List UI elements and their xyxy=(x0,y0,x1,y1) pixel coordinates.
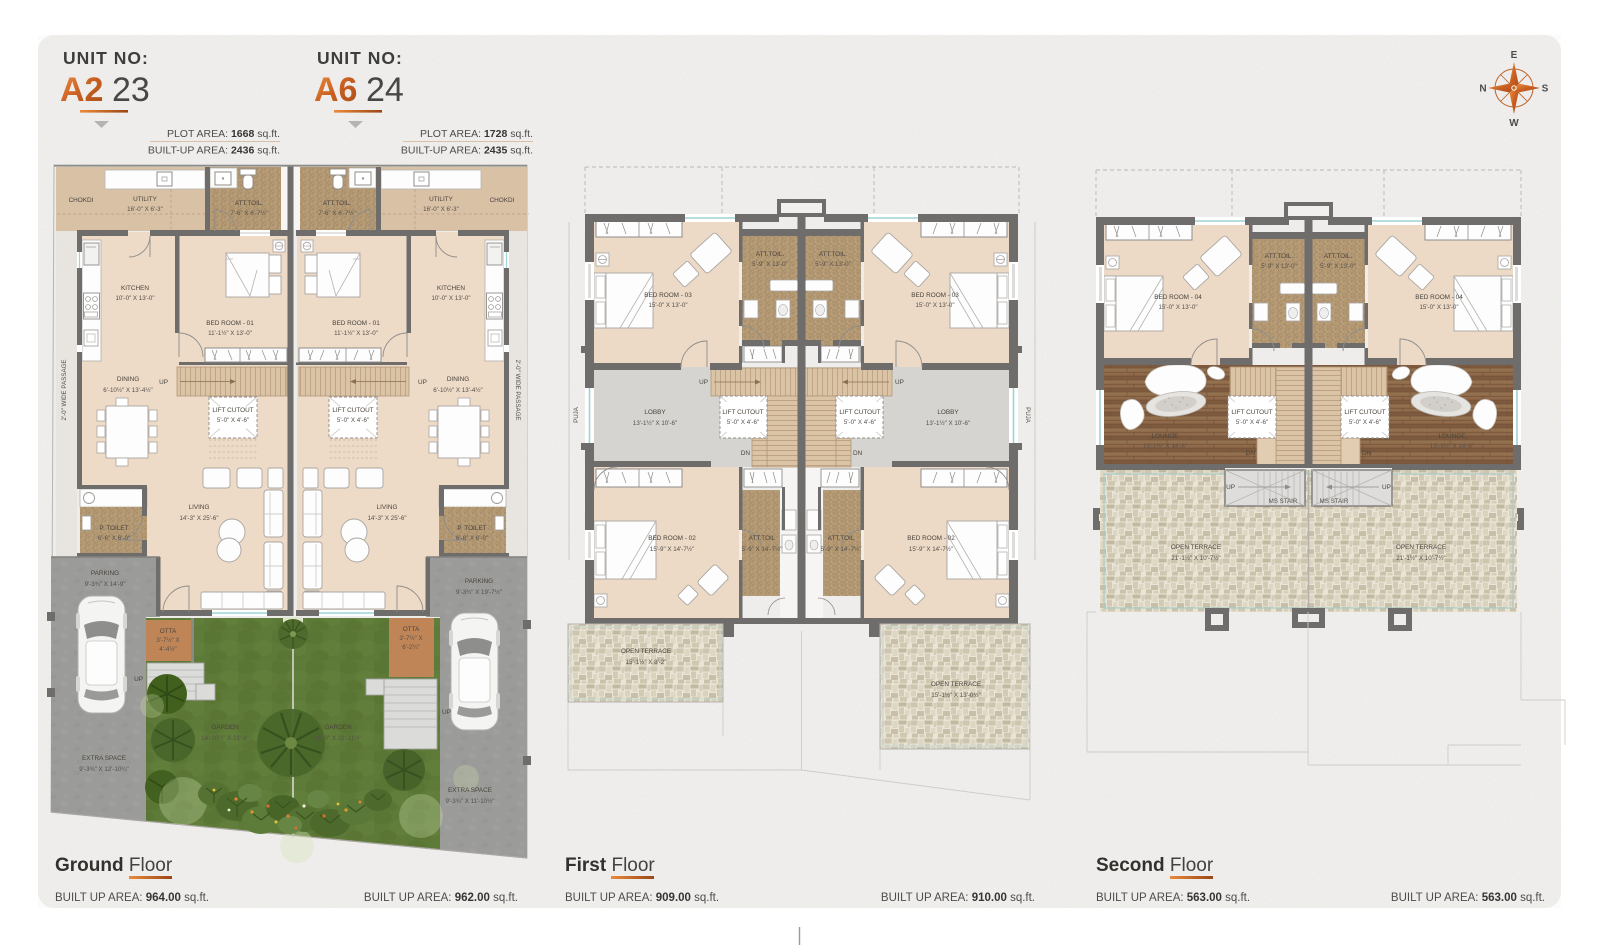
svg-text:2'-0" WIDE PASSAGE: 2'-0" WIDE PASSAGE xyxy=(61,359,68,420)
svg-text:4'-4½": 4'-4½" xyxy=(159,646,176,653)
svg-text:10'-0" X 13'-0": 10'-0" X 13'-0" xyxy=(431,295,470,302)
svg-text:A6: A6 xyxy=(314,71,357,109)
svg-text:LIFT CUTOUT: LIFT CUTOUT xyxy=(1344,409,1385,416)
svg-text:Ground Floor: Ground Floor xyxy=(55,855,173,876)
svg-text:16'-0" X 6'-3": 16'-0" X 6'-3" xyxy=(127,206,163,213)
svg-text:P. TOILET: P. TOILET xyxy=(457,525,486,532)
svg-text:DN: DN xyxy=(853,450,863,457)
svg-text:UNIT NO:: UNIT NO: xyxy=(317,48,403,68)
svg-text:EXTRA SPACE: EXTRA SPACE xyxy=(82,755,126,762)
svg-text:UP: UP xyxy=(442,709,451,716)
svg-text:GARDEN: GARDEN xyxy=(211,724,239,731)
svg-text:7'-6" X 6'-7½": 7'-6" X 6'-7½" xyxy=(318,210,355,217)
svg-text:7'-6" X 6'-7½": 7'-6" X 6'-7½" xyxy=(230,210,267,217)
svg-text:9'-3¾" X 12'-10¼": 9'-3¾" X 12'-10¼" xyxy=(79,766,128,773)
svg-text:13'-1½" X 10'-6": 13'-1½" X 10'-6" xyxy=(926,420,970,427)
svg-text:5'-9" X 13'-0": 5'-9" X 13'-0" xyxy=(1320,263,1356,270)
svg-text:OPEN TERRACE: OPEN TERRACE xyxy=(1171,544,1221,551)
svg-text:13'-1½" X 14'-6": 13'-1½" X 14'-6" xyxy=(1143,443,1187,450)
svg-text:ATT.TOIL.: ATT.TOIL. xyxy=(756,251,785,258)
svg-text:5'-0" X 4'-6": 5'-0" X 4'-6" xyxy=(1236,419,1268,426)
svg-text:10'-0" X 13'-0": 10'-0" X 13'-0" xyxy=(115,295,154,302)
svg-text:3'-7½" X: 3'-7½" X xyxy=(399,635,422,642)
svg-text:BED ROOM - 01: BED ROOM - 01 xyxy=(206,320,254,327)
svg-text:5'-9" X 13'-0": 5'-9" X 13'-0" xyxy=(815,261,851,268)
svg-text:BUILT UP AREA: 910.00 sq.ft.: BUILT UP AREA: 910.00 sq.ft. xyxy=(881,892,1035,904)
svg-text:15'-1½" X 8'-2": 15'-1½" X 8'-2" xyxy=(626,659,667,666)
svg-text:23: 23 xyxy=(112,71,150,109)
svg-text:LIFT CUTOUT: LIFT CUTOUT xyxy=(1231,409,1272,416)
svg-text:15'-9" X 14'-7½": 15'-9" X 14'-7½" xyxy=(909,546,953,553)
svg-text:EXTRA SPACE: EXTRA SPACE xyxy=(448,787,492,794)
svg-text:13'-1½" X 10'-6": 13'-1½" X 10'-6" xyxy=(633,420,677,427)
svg-text:DN: DN xyxy=(741,450,751,457)
svg-text:S: S xyxy=(1542,84,1549,95)
svg-text:ATT.TOIL: ATT.TOIL xyxy=(828,535,855,542)
svg-text:LIVING: LIVING xyxy=(377,504,398,511)
svg-text:LIFT CUTOUT: LIFT CUTOUT xyxy=(332,407,373,414)
svg-text:14'-3" X 25'-6": 14'-3" X 25'-6" xyxy=(179,515,218,522)
svg-text:11'-1½" X 13'-0": 11'-1½" X 13'-0" xyxy=(334,330,378,337)
svg-text:OPEN TERRACE: OPEN TERRACE xyxy=(1396,544,1446,551)
svg-text:OTTA: OTTA xyxy=(403,626,420,633)
svg-text:9'-3¾" X 14'-9": 9'-3¾" X 14'-9" xyxy=(85,581,126,588)
svg-text:5'-0" X 4'-6": 5'-0" X 4'-6" xyxy=(1349,419,1381,426)
svg-text:LIFT CUTOUT: LIFT CUTOUT xyxy=(839,409,880,416)
svg-text:PLOT AREA: 1728 sq.ft.: PLOT AREA: 1728 sq.ft. xyxy=(420,128,533,140)
svg-text:5'-9" X 13'-0": 5'-9" X 13'-0" xyxy=(1261,263,1297,270)
svg-text:LIVING: LIVING xyxy=(189,504,210,511)
svg-text:BED ROOM - 03: BED ROOM - 03 xyxy=(911,292,959,299)
svg-text:KITCHEN: KITCHEN xyxy=(437,285,465,292)
svg-text:LOBBY: LOBBY xyxy=(937,409,959,416)
svg-text:BED ROOM - 02: BED ROOM - 02 xyxy=(907,535,955,542)
svg-text:UP: UP xyxy=(134,676,143,683)
svg-text:LIFT CUTOUT: LIFT CUTOUT xyxy=(212,407,253,414)
svg-text:UTILITY: UTILITY xyxy=(429,196,454,203)
svg-text:LOUNGE: LOUNGE xyxy=(1152,433,1179,440)
svg-text:UP: UP xyxy=(1382,484,1391,491)
svg-text:BUILT UP AREA: 964.00 sq.ft.: BUILT UP AREA: 964.00 sq.ft. xyxy=(55,892,209,904)
svg-text:3'-7½" X: 3'-7½" X xyxy=(156,637,179,644)
svg-text:UP: UP xyxy=(1226,484,1235,491)
svg-text:LOBBY: LOBBY xyxy=(644,409,666,416)
svg-text:PARKING: PARKING xyxy=(91,570,119,577)
svg-text:DINING: DINING xyxy=(117,376,139,383)
svg-text:16'-0" X 6'-3": 16'-0" X 6'-3" xyxy=(423,206,459,213)
svg-text:E: E xyxy=(1511,50,1518,61)
svg-text:14'-3" X 25'-6": 14'-3" X 25'-6" xyxy=(367,515,406,522)
svg-text:21'-1½" X 10'-7½": 21'-1½" X 10'-7½" xyxy=(1171,555,1220,562)
svg-text:UP: UP xyxy=(159,379,168,386)
svg-text:CHOKDI: CHOKDI xyxy=(69,197,94,204)
svg-text:ATT.TOIL.: ATT.TOIL. xyxy=(819,251,848,258)
svg-text:5'-0" X 4'-6": 5'-0" X 4'-6" xyxy=(217,417,249,424)
svg-text:5'-9" X 13'-0": 5'-9" X 13'-0" xyxy=(752,261,788,268)
svg-text:ATT.TOIL.: ATT.TOIL. xyxy=(323,200,352,207)
svg-text:24: 24 xyxy=(366,71,404,109)
svg-text:21'-1½" X 10'-7½": 21'-1½" X 10'-7½" xyxy=(1396,555,1445,562)
svg-text:BUILT UP AREA: 563.00 sq.ft.: BUILT UP AREA: 563.00 sq.ft. xyxy=(1391,892,1545,904)
svg-text:UP: UP xyxy=(895,379,904,386)
svg-text:BUILT-UP AREA: 2436 sq.ft.: BUILT-UP AREA: 2436 sq.ft. xyxy=(148,145,280,157)
svg-text:First Floor: First Floor xyxy=(565,855,655,876)
svg-text:GARDEN: GARDEN xyxy=(324,724,352,731)
svg-text:CHOKDI: CHOKDI xyxy=(490,197,515,204)
svg-text:MS STAIR: MS STAIR xyxy=(1269,498,1298,505)
svg-text:MS STAIR: MS STAIR xyxy=(1320,498,1349,505)
svg-text:6'-6" X 6'-0": 6'-6" X 6'-0" xyxy=(456,535,488,542)
svg-text:ATT.TOIL.: ATT.TOIL. xyxy=(1324,253,1353,260)
svg-text:5'-9" X 14'-7½": 5'-9" X 14'-7½" xyxy=(742,546,783,553)
svg-text:5'-0" X 4'-6": 5'-0" X 4'-6" xyxy=(844,419,876,426)
svg-text:ATT.TOIL: ATT.TOIL xyxy=(749,535,776,542)
svg-text:BUILT-UP AREA: 2435 sq.ft.: BUILT-UP AREA: 2435 sq.ft. xyxy=(401,145,533,157)
svg-text:PUJA: PUJA xyxy=(1024,407,1031,424)
svg-text:ATT.TOIL.: ATT.TOIL. xyxy=(1265,253,1294,260)
svg-text:15'-1½" X 13'-0½": 15'-1½" X 13'-0½" xyxy=(931,692,980,699)
svg-text:5'-0" X 4'-6": 5'-0" X 4'-6" xyxy=(337,417,369,424)
svg-text:UNIT NO:: UNIT NO: xyxy=(63,48,149,68)
svg-text:5'-9" X 14'-7½": 5'-9" X 14'-7½" xyxy=(821,546,862,553)
svg-text:OTTA: OTTA xyxy=(160,628,177,635)
svg-text:KITCHEN: KITCHEN xyxy=(121,285,149,292)
svg-text:6'-10½" X 13'-4½": 6'-10½" X 13'-4½" xyxy=(103,387,152,394)
svg-text:6'-6" X 6'-0": 6'-6" X 6'-0" xyxy=(98,535,130,542)
svg-text:LOUNGE: LOUNGE xyxy=(1439,433,1466,440)
svg-text:BED ROOM - 01: BED ROOM - 01 xyxy=(332,320,380,327)
svg-text:9'-3¾" X 19'-7½": 9'-3¾" X 19'-7½" xyxy=(456,589,502,596)
svg-text:DN: DN xyxy=(1246,450,1256,457)
svg-text:PUJA: PUJA xyxy=(573,406,580,423)
svg-text:2'-0" WIDE PASSAGE: 2'-0" WIDE PASSAGE xyxy=(514,359,521,420)
svg-text:BED ROOM - 04: BED ROOM - 04 xyxy=(1415,294,1463,301)
svg-text:P. TOILET: P. TOILET xyxy=(99,525,128,532)
svg-text:PARKING: PARKING xyxy=(465,578,493,585)
svg-text:N: N xyxy=(1479,84,1486,95)
svg-text:11'-1½" X 13'-0": 11'-1½" X 13'-0" xyxy=(208,330,252,337)
svg-text:W: W xyxy=(1509,118,1519,129)
svg-text:BUILT UP AREA: 563.00 sq.ft.: BUILT UP AREA: 563.00 sq.ft. xyxy=(1096,892,1250,904)
svg-text:15'-0" X 13'-0": 15'-0" X 13'-0" xyxy=(1419,304,1458,311)
svg-text:14'-10½" X 21'-6": 14'-10½" X 21'-6" xyxy=(201,735,249,742)
svg-text:15'-0" X 22'-11½": 15'-0" X 22'-11½" xyxy=(314,735,361,742)
svg-text:UTILITY: UTILITY xyxy=(133,196,158,203)
svg-text:13'-1½" X 14'-6": 13'-1½" X 14'-6" xyxy=(1430,443,1474,450)
svg-text:6'-2¼": 6'-2¼" xyxy=(402,644,419,651)
svg-text:OPEN TERRACE: OPEN TERRACE xyxy=(621,648,671,655)
svg-text:Second Floor: Second Floor xyxy=(1096,855,1214,876)
svg-text:15'-9" X 14'-7½": 15'-9" X 14'-7½" xyxy=(650,546,694,553)
svg-text:15'-0" X 13'-0": 15'-0" X 13'-0" xyxy=(648,302,687,309)
svg-text:UP: UP xyxy=(418,379,427,386)
svg-text:ATT.TOIL.: ATT.TOIL. xyxy=(235,200,264,207)
svg-text:LIFT CUTOUT: LIFT CUTOUT xyxy=(722,409,763,416)
svg-text:BUILT UP AREA: 909.00 sq.ft.: BUILT UP AREA: 909.00 sq.ft. xyxy=(565,892,719,904)
svg-text:15'-0" X 13'-0": 15'-0" X 13'-0" xyxy=(1158,304,1197,311)
svg-text:9'-3¾" X 11'-10½": 9'-3¾" X 11'-10½" xyxy=(446,798,495,805)
svg-text:BED ROOM - 02: BED ROOM - 02 xyxy=(648,535,696,542)
svg-text:15'-0" X 13'-0": 15'-0" X 13'-0" xyxy=(915,302,954,309)
svg-text:OPEN TERRACE: OPEN TERRACE xyxy=(931,681,981,688)
svg-text:A2: A2 xyxy=(60,71,103,109)
svg-text:PLOT AREA: 1668 sq.ft.: PLOT AREA: 1668 sq.ft. xyxy=(167,128,280,140)
svg-text:BUILT UP AREA: 962.00 sq.ft.: BUILT UP AREA: 962.00 sq.ft. xyxy=(364,892,518,904)
svg-text:DINING: DINING xyxy=(447,376,469,383)
svg-text:UP: UP xyxy=(699,379,708,386)
svg-text:DN: DN xyxy=(1362,450,1372,457)
svg-text:5'-0" X 4'-6": 5'-0" X 4'-6" xyxy=(727,419,759,426)
svg-text:6'-10½" X 13'-4½": 6'-10½" X 13'-4½" xyxy=(433,387,482,394)
svg-text:BED ROOM - 04: BED ROOM - 04 xyxy=(1154,294,1202,301)
svg-text:BED ROOM - 03: BED ROOM - 03 xyxy=(644,292,692,299)
